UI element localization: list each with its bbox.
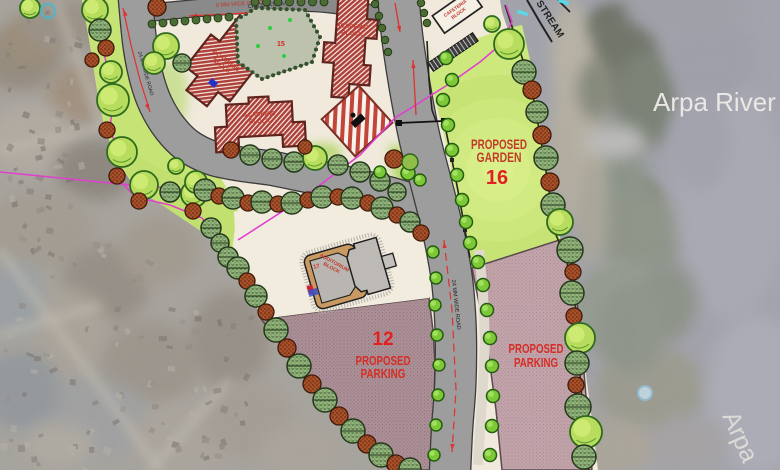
svg-text:PARKING: PARKING (361, 366, 406, 381)
svg-text:GARDEN: GARDEN (477, 149, 522, 165)
svg-text:16: 16 (486, 167, 508, 189)
svg-text:12: 12 (372, 329, 393, 350)
svg-text:15: 15 (277, 41, 285, 48)
svg-text:PARKING: PARKING (514, 355, 558, 370)
svg-text:BLOCK: BLOCK (249, 118, 271, 125)
svg-text:Arpa River: Arpa River (653, 87, 776, 117)
svg-text:PROPOSED: PROPOSED (509, 341, 564, 356)
